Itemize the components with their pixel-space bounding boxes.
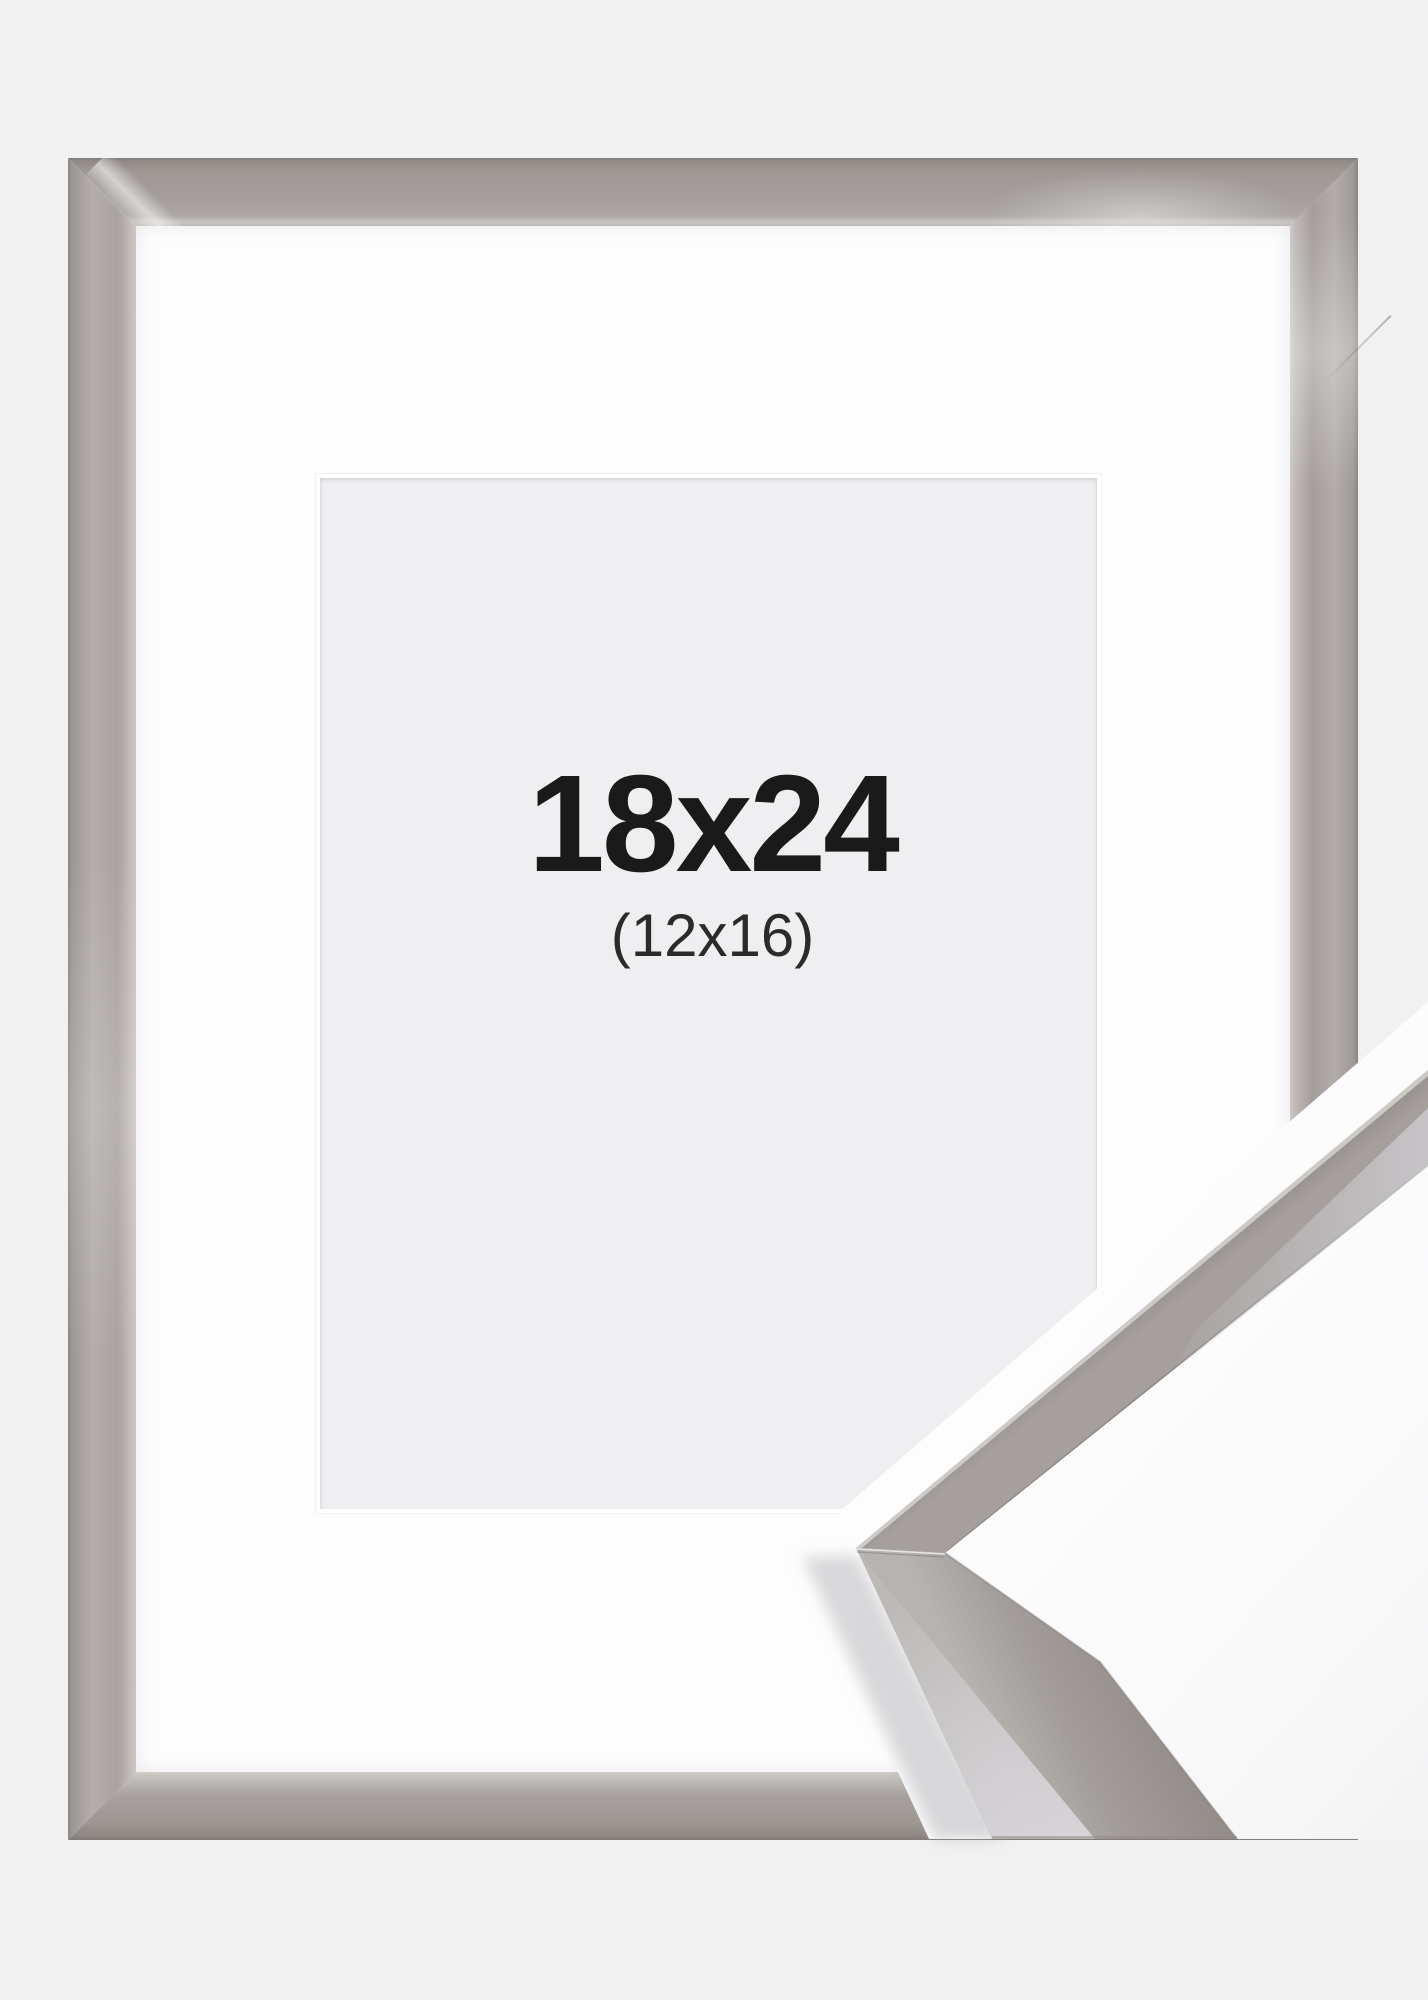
- product-image: 18x24 (12x16): [0, 0, 1428, 2000]
- corner-sample-overlay: [0, 0, 1428, 2000]
